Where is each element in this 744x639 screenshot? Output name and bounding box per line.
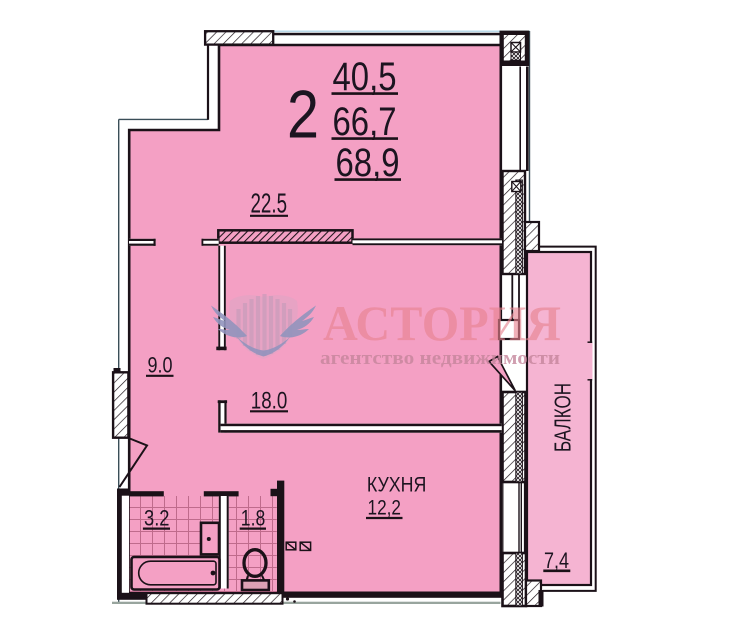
svg-text:БАЛКОН: БАЛКОН: [550, 383, 576, 452]
svg-text:12,2: 12,2: [368, 496, 402, 519]
svg-text:агентство недвижимости: агентство недвижимости: [320, 348, 560, 369]
svg-text:АСТОРИЯ: АСТОРИЯ: [323, 295, 561, 351]
svg-text:2: 2: [287, 77, 319, 153]
svg-text:КУХНЯ: КУХНЯ: [367, 473, 427, 496]
svg-text:9.0: 9.0: [148, 353, 173, 378]
svg-text:22.5: 22.5: [251, 188, 288, 219]
svg-text:7,4: 7,4: [544, 548, 569, 573]
svg-text:1.8: 1.8: [241, 505, 265, 530]
svg-text:3.2: 3.2: [144, 505, 170, 530]
